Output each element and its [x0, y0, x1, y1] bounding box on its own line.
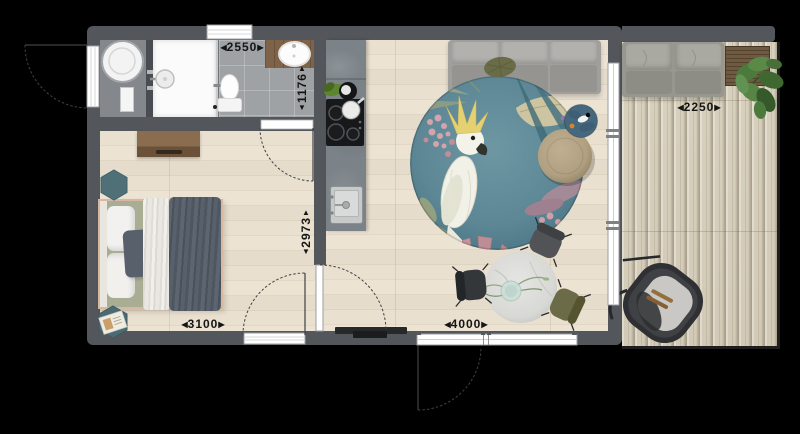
washing-machine [101, 40, 144, 83]
bed-duvet-dark [169, 197, 221, 311]
sofa-seat-3 [550, 65, 597, 92]
sofa-back-cushion-2 [501, 42, 548, 64]
outdoor-sofa-seat-1 [626, 71, 672, 94]
floor-plan: ◀ 2550 ▶ ▲ 1176 ▼ ▲ 2973 ▼ ◀ 3100 ▶ ◀ 40… [0, 0, 800, 434]
arrow-down-icon: ▼ [298, 103, 306, 112]
toilet-bowl [220, 74, 239, 100]
arrow-up-icon: ▲ [302, 208, 310, 217]
outdoor-sofa-back-cushion-1 [626, 44, 672, 70]
bed-duvet-white [143, 198, 170, 310]
kitchen-sink-basin [334, 190, 359, 217]
sofa-seat-1 [452, 65, 499, 92]
dimension-value: 2250 [684, 100, 715, 114]
bathroom-partition-wall [146, 40, 153, 117]
dimension-label-bedroom-depth: ▲ 2973 ▼ [296, 203, 316, 261]
door-opening-floor-patch [314, 265, 326, 331]
outdoor-sofa-back-cushion-2 [675, 44, 721, 70]
arrow-right-icon: ▶ [481, 320, 487, 329]
slat-table [725, 46, 770, 86]
bathroom-bottom-wall [100, 117, 314, 131]
sofa-back-cushion-3 [550, 42, 597, 64]
dimension-value: 4000 [451, 317, 482, 331]
terrace-top-wall [622, 26, 775, 42]
dimension-label-living-width: ◀ 4000 ▶ [426, 317, 506, 331]
dimension-label-bathroom-width: ◀ 2550 ▶ [202, 40, 282, 54]
tv [353, 331, 387, 338]
dimension-value: 1176 [295, 73, 309, 103]
cooktop [326, 99, 364, 146]
bath-mat [120, 87, 134, 112]
dimension-label-bathroom-depth: ▲ 1176 ▼ [292, 60, 312, 116]
dimension-value: 2550 [227, 40, 258, 54]
dimension-value: 3100 [188, 317, 219, 331]
arrow-right-icon: ▶ [257, 43, 263, 52]
sofa-back-cushion-1 [452, 42, 499, 64]
outdoor-sofa-seat-2 [675, 71, 721, 94]
dimension-label-terrace-width: ◀ 2250 ▶ [659, 100, 739, 114]
dimension-label-bedroom-width: ◀ 3100 ▶ [163, 317, 243, 331]
arrow-down-icon: ▼ [302, 247, 310, 256]
bed-headboard [100, 201, 107, 307]
dresser [137, 131, 200, 157]
arrow-right-icon: ▶ [218, 320, 224, 329]
toilet-tank [217, 98, 242, 112]
sofa-seat-2 [501, 65, 548, 92]
arrow-right-icon: ▶ [714, 103, 720, 112]
dimension-value: 2973 [299, 217, 313, 248]
arrow-up-icon: ▲ [298, 64, 306, 73]
